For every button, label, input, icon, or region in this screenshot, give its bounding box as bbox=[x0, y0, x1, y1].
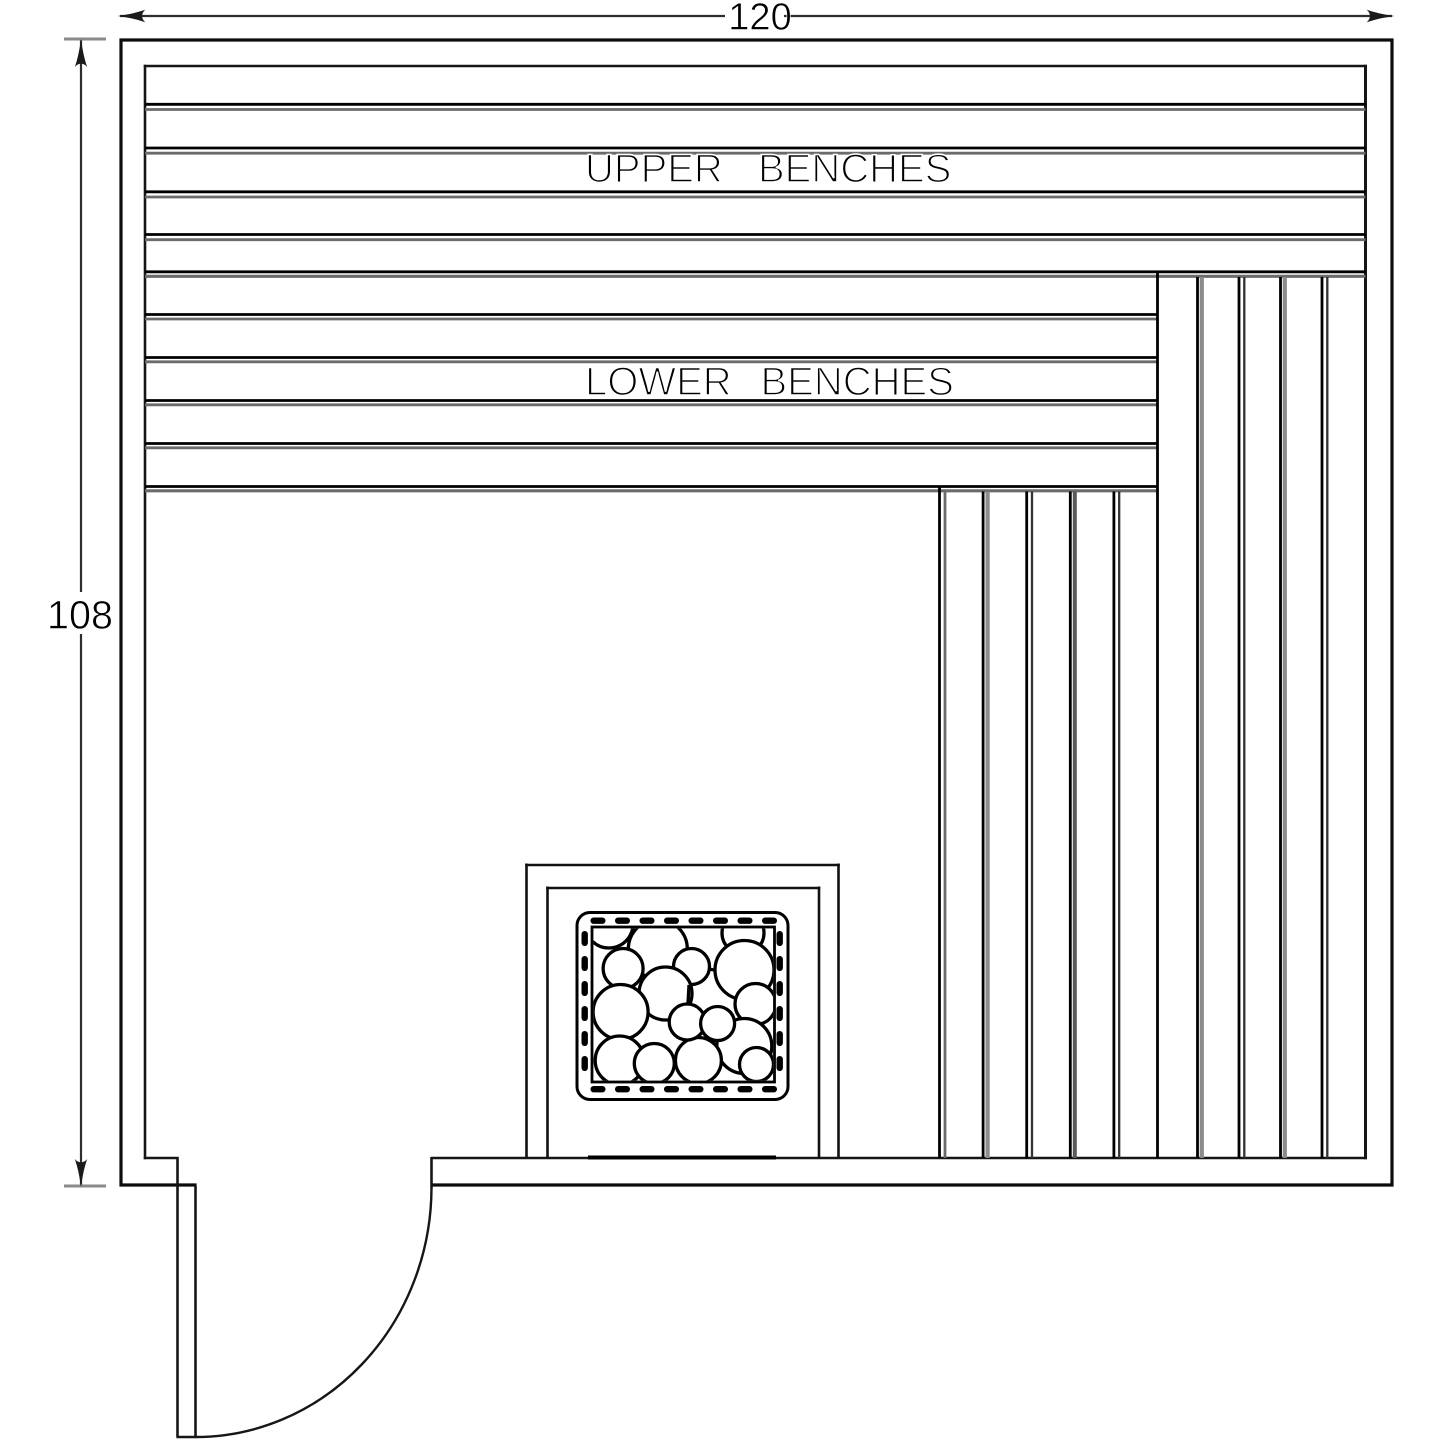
svg-text:108: 108 bbox=[47, 594, 113, 638]
svg-text:BENCHES: BENCHES bbox=[758, 147, 951, 191]
svg-text:120: 120 bbox=[728, 0, 791, 39]
svg-text:LOWER: LOWER bbox=[585, 360, 732, 404]
svg-text:BENCHES: BENCHES bbox=[761, 360, 954, 404]
svg-text:UPPER: UPPER bbox=[585, 147, 723, 191]
